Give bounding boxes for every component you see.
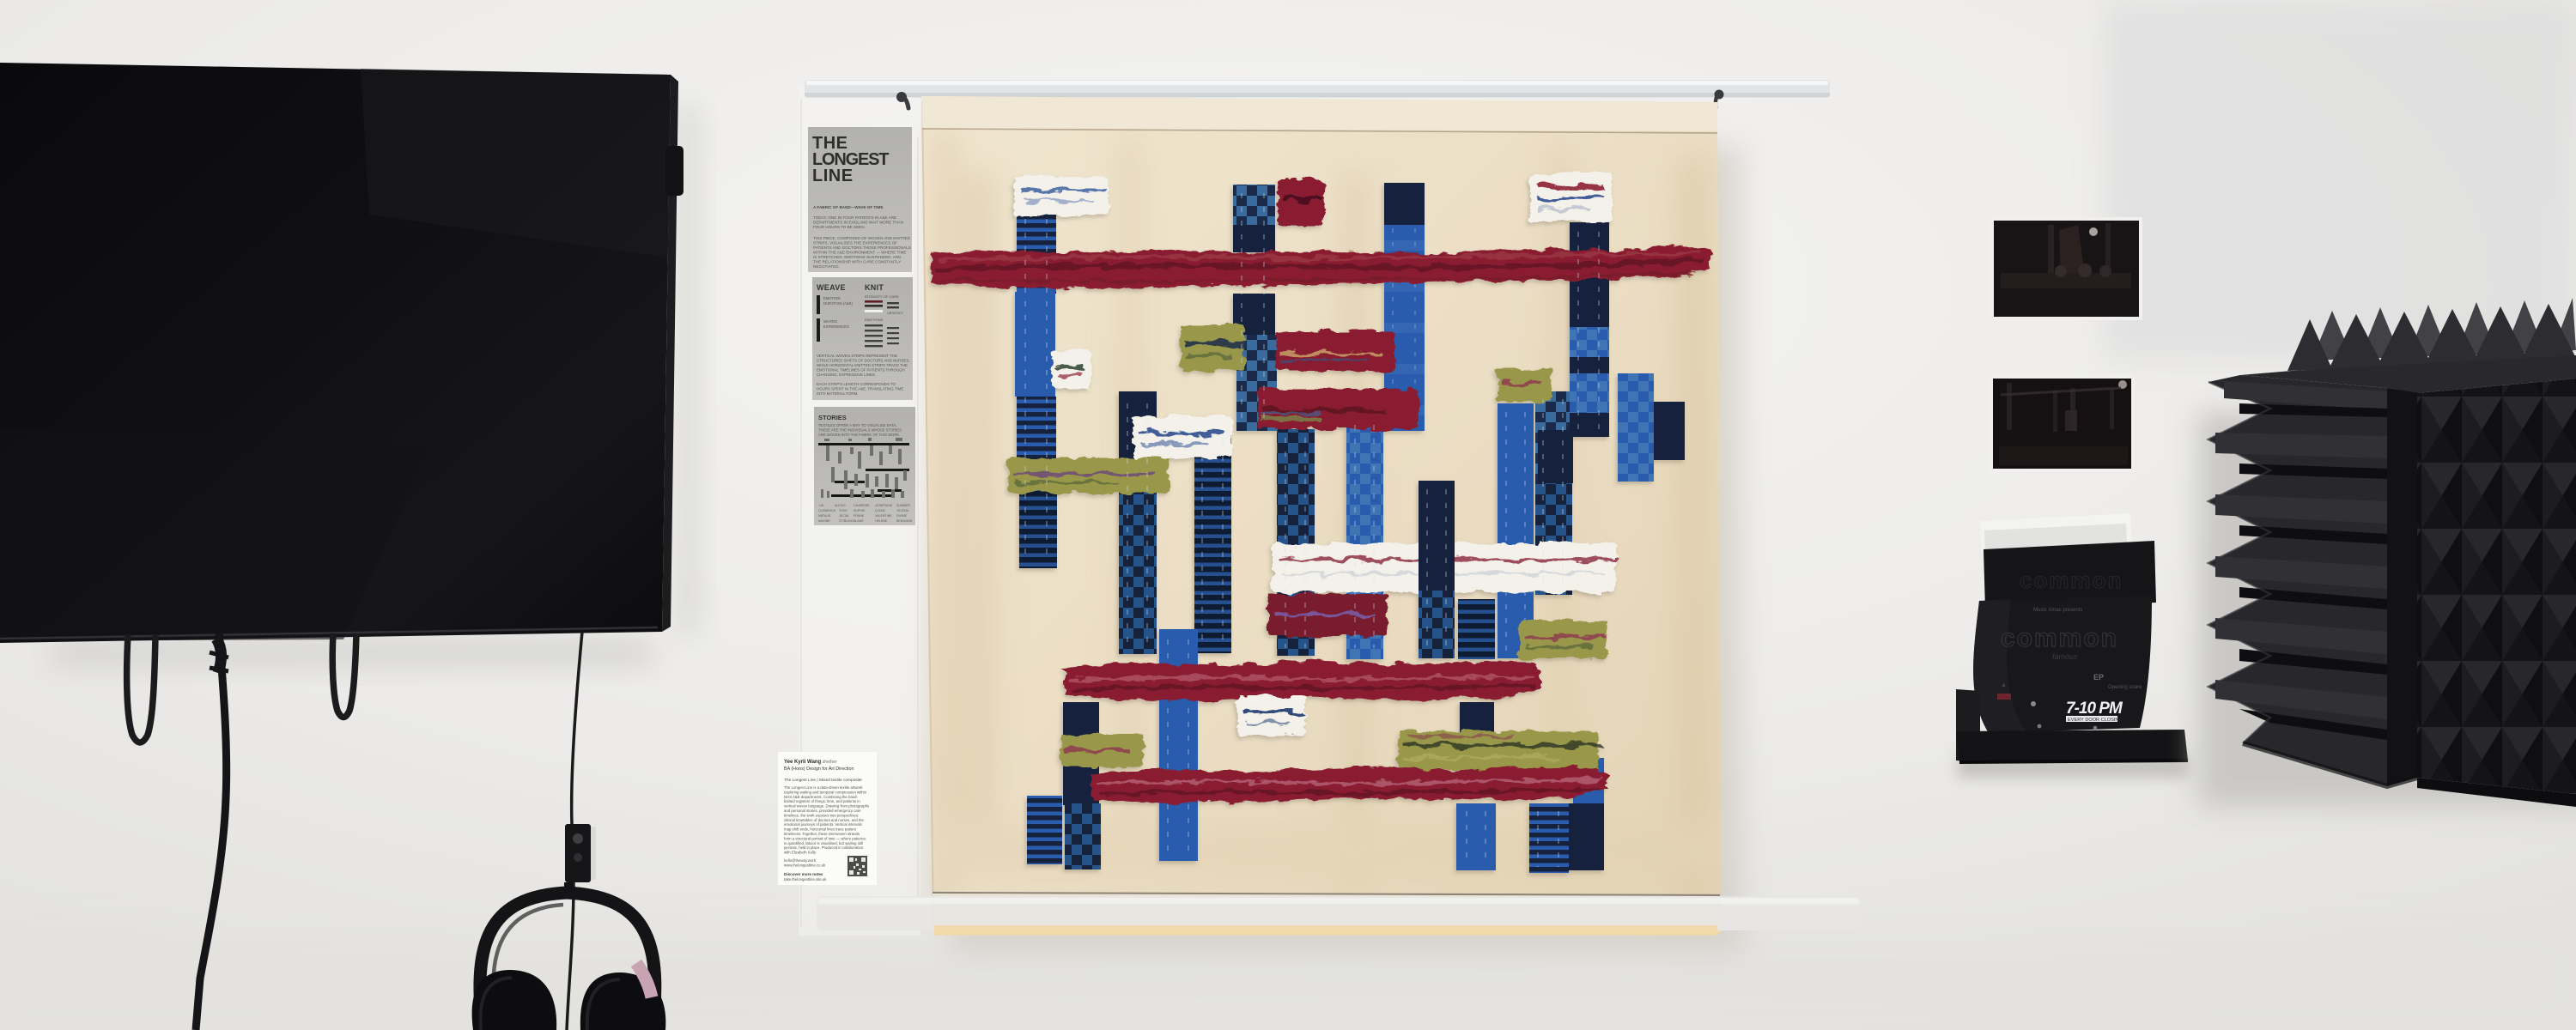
- svg-text:Music Xmas presents: Music Xmas presents: [2033, 608, 2082, 613]
- svg-text:hello@theway.work: hello@theway.work: [784, 858, 817, 863]
- svg-text:common: common: [2020, 567, 2123, 593]
- svg-text:with Elizabeth Kelly.: with Elizabeth Kelly.: [784, 851, 817, 855]
- svg-text:timelines, the work exposes tw: timelines, the work exposes two perspect…: [784, 813, 859, 817]
- svg-text:J.W.: J.W.: [818, 504, 824, 507]
- svg-text:EP: EP: [2093, 673, 2104, 682]
- svg-text:HOURS SPENT IN THE A&E, TRANSL: HOURS SPENT IN THE A&E, TRANSLATING TIME: [817, 387, 903, 391]
- svg-text:DIVINE: DIVINE: [896, 514, 908, 518]
- svg-text:HELENE: HELENE: [875, 519, 888, 523]
- svg-text:common: common: [2001, 624, 2118, 652]
- svg-text:form a structural portrait of: form a structural portrait of time — whe…: [784, 836, 866, 840]
- svg-text:timeliness. Together, these in: timeliness. Together, these interwoven s…: [784, 832, 860, 836]
- svg-text:EVERY DOOR CLOSING: EVERY DOOR CLOSING: [2068, 718, 2123, 723]
- svg-text:STRIPS, VISUALISES THE EXPERIE: STRIPS, VISUALISES THE EXPERIENCES OF: [813, 241, 897, 245]
- svg-text:www.thelongestline.co.uk: www.thelongestline.co.uk: [784, 863, 826, 867]
- svg-text:FRANK: FRANK: [854, 514, 865, 518]
- svg-text:famous: famous: [2052, 652, 2078, 661]
- svg-text:EXPERIENCES: EXPERIENCES: [823, 324, 849, 329]
- svg-text:KNIT: KNIT: [865, 283, 884, 292]
- svg-text:EACH STRIP'S LENGTH CORRESPOND: EACH STRIP'S LENGTH CORRESPONDS TO: [817, 382, 896, 386]
- svg-text:Discover more notes: Discover more notes: [784, 872, 823, 876]
- svg-text:NEGOTIATED.: NEGOTIATED.: [813, 264, 840, 269]
- svg-text:THESE ARE THE INDIVIDUALS WHOS: THESE ARE THE INDIVIDUALS WHOSE STORIES: [818, 428, 902, 433]
- svg-text:knitted registers of things: t: knitted registers of things: time, and p…: [784, 799, 860, 803]
- svg-text:persists, held in place. Produ: persists, held in place. Produced in col…: [784, 845, 864, 850]
- svg-text:URGENCY: URGENCY: [887, 312, 903, 315]
- svg-text:LINE: LINE: [812, 167, 854, 185]
- svg-text:WITHIN THE A&E ENVIRONMENT — W: WITHIN THE A&E ENVIRONMENT — WHERE TIME: [813, 251, 906, 255]
- svg-text:Yee Kyrli Wang she/her: Yee Kyrli Wang she/her: [784, 760, 837, 765]
- svg-text:ALEXIS: ALEXIS: [835, 504, 846, 507]
- svg-text:CHARISSE: CHARISSE: [854, 504, 870, 507]
- svg-text:VALENTINE: VALENTINE: [875, 514, 892, 518]
- svg-text:A FABRIC OF BAND—WAVE OF TIME: A FABRIC OF BAND—WAVE OF TIME: [813, 205, 883, 209]
- svg-text:Opening snare: Opening snare: [2108, 685, 2142, 690]
- svg-text:ARE WOVEN INTO THE FABRIC OF T: ARE WOVEN INTO THE FABRIC OF THIS WORK.: [818, 433, 900, 437]
- svg-text:STRUCTURED SHIFTS OF DOCTORS A: STRUCTURED SHIFTS OF DOCTORS AND NURSES,: [817, 359, 909, 363]
- svg-text:emotional journeys of patients: emotional journeys of patients. Vertical…: [784, 822, 862, 827]
- svg-text:exploring waiting and temporal: exploring waiting and temporal compressi…: [784, 790, 867, 794]
- svg-text:take.thelongestline.site.uk: take.thelongestline.site.uk: [784, 877, 827, 882]
- svg-text:CLEMENCE: CLEMENCE: [818, 509, 836, 512]
- svg-text:WAITED: WAITED: [823, 319, 837, 324]
- svg-text:WEAVE: WEAVE: [817, 283, 846, 292]
- svg-text:DURATION (A&E): DURATION (A&E): [823, 301, 853, 306]
- svg-text:PATIENTS AND DOCTORS THOSE PRO: PATIENTS AND DOCTORS THOSE PROFESSIONALS: [813, 245, 911, 250]
- svg-text:EMOTIONAL TIMELINES OF PATIENT: EMOTIONAL TIMELINES OF PATIENTS THROUGH: [817, 368, 905, 373]
- svg-text:▲: ▲: [2001, 682, 2007, 688]
- svg-text:7-10 PM: 7-10 PM: [2066, 700, 2123, 718]
- svg-text:The Longest Line is a data-dri: The Longest Line is a data-driven textil…: [784, 785, 863, 790]
- svg-text:IS STRETCHED, EMOTIONS SUSPEND: IS STRETCHED, EMOTIONS SUSPENDED, AND: [813, 255, 902, 259]
- svg-text:THE RELATIONSHIP WITH CARE CON: THE RELATIONSHIP WITH CARE CONSTANTLY: [813, 260, 901, 264]
- svg-text:EMOTION: EMOTION: [823, 296, 841, 300]
- svg-text:FOUR HOURS TO BE SEEN.: FOUR HOURS TO BE SEEN.: [813, 225, 866, 229]
- svg-text:BENJAMIN: BENJAMIN: [896, 519, 913, 523]
- svg-text:MAXINE: MAXINE: [818, 519, 830, 523]
- svg-text:JOSEPHINE: JOSEPHINE: [875, 504, 893, 507]
- svg-text:is quantified, labour is visua: is quantified, labour is visualised, but…: [784, 841, 863, 845]
- svg-text:INTO MATERIAL FORM.: INTO MATERIAL FORM.: [817, 391, 858, 396]
- svg-text:CHANGING, EXPRESSIVE LINES.: CHANGING, EXPRESSIVE LINES.: [817, 373, 876, 377]
- svg-text:VERTICAL WOVEN STRIPS REPRESEN: VERTICAL WOVEN STRIPS REPRESENT THE: [817, 354, 897, 358]
- svg-text:TEXTILES OFFER A WAY TO VISUAL: TEXTILES OFFER A WAY TO VISUALISE DATA,: [818, 423, 896, 427]
- svg-text:TODAY, ONE IN FOUR PATIENTS IN: TODAY, ONE IN FOUR PATIENTS IN A&E ARE: [813, 215, 896, 220]
- svg-text:BA (Hons) Design for Art Direc: BA (Hons) Design for Art Direction: [784, 766, 854, 772]
- svg-text:TOVE: TOVE: [839, 509, 848, 512]
- svg-text:NATALIE: NATALIE: [818, 514, 831, 518]
- svg-text:THIS PIECE, COMPOSED OF WOVEN: THIS PIECE, COMPOSED OF WOVEN AND KNITTE…: [813, 236, 910, 240]
- svg-text:Q.SAM: Q.SAM: [875, 509, 885, 512]
- svg-text:and personal stories, provided: and personal stories, provided emergency…: [784, 809, 861, 813]
- svg-text:STIRLING: STIRLING: [839, 519, 854, 523]
- svg-text:JECIAL: JECIAL: [839, 514, 849, 518]
- svg-text:INTENSITY OF CARE: INTENSITY OF CARE: [865, 294, 899, 299]
- svg-text:YELENA: YELENA: [896, 509, 909, 512]
- svg-text:STORIES: STORIES: [818, 414, 847, 421]
- svg-text:NHS A&E departments. Combining: NHS A&E departments. Combining the hand-: [784, 795, 859, 799]
- svg-text:The Longest Line | Mixed texti: The Longest Line | Mixed textile composi…: [784, 778, 862, 783]
- svg-text:BLAKE: BLAKE: [854, 519, 864, 523]
- svg-text:WHILE HORIZONTAL KNITTED STRIP: WHILE HORIZONTAL KNITTED STRIPS TRACE TH…: [817, 363, 908, 367]
- svg-text:map shift ends, horizontal lin: map shift ends, horizontal lines trace p…: [784, 827, 857, 832]
- svg-text:DEPARTMENTS IN ENGLAND WAIT MO: DEPARTMENTS IN ENGLAND WAIT MORE THAN: [813, 221, 903, 225]
- svg-text:SUPHIE: SUPHIE: [854, 509, 866, 512]
- svg-text:EMOTIONS: EMOTIONS: [865, 318, 884, 322]
- svg-text:SUMMER: SUMMER: [896, 504, 910, 507]
- svg-text:clinical timetables of doctors: clinical timetables of doctors and nurse…: [784, 818, 865, 822]
- svg-text:vertical woven language. Drawi: vertical woven language. Drawing from ph…: [784, 804, 869, 809]
